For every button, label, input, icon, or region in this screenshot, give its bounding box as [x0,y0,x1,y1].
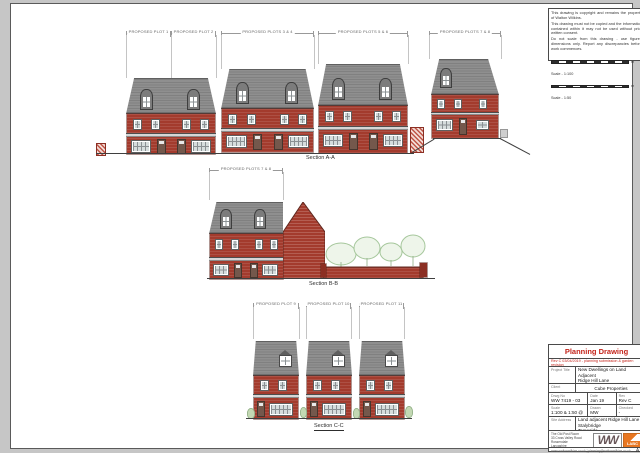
window [384,380,393,391]
scale-bar [551,85,629,89]
window [479,99,487,109]
extension-line [253,307,254,339]
site-address-label-cell: Site Address [549,417,575,430]
dormer-window [254,209,266,229]
window [437,99,445,109]
company-row: The Old Post Room 33 Cross Valley Road R… [549,430,640,447]
plot-label: PROPOSED PLOT 2 [172,29,216,34]
copy-restriction-note: This drawing must not be copied and the … [551,22,640,36]
plot-label: PROPOSED PLOTS 7 & 8 [438,29,492,34]
drawing-sheet: PROPOSED PLOT 1 PROPOSED PLOT 2 PROPOSED… [10,3,633,449]
elevation-plot-11 [359,341,405,419]
plot-label: PROPOSED PLOTS 5 & 6 [336,29,390,34]
ground-line [207,278,435,279]
scale-bar-1-50: m Scale - 1:50 [551,78,640,101]
roof [306,341,352,376]
elevation-plots-3-4 [221,69,314,152]
extension-line [404,307,405,339]
site-address-row: Site Address Land adjacent Ridge Hill La… [549,416,640,430]
elevation-plot-10 [306,341,352,419]
section-b-label: Section B-B [309,281,338,287]
dormer-window [332,78,345,100]
extension-line [501,35,502,59]
dimension-line-plots-7-8: PROPOSED PLOTS 7 & 8 [209,170,283,171]
front-door [369,133,378,150]
window [182,119,191,130]
dormer-window [279,355,292,367]
ground-line [246,418,412,419]
extension-line [306,307,307,339]
window [247,114,256,125]
client-name: Cube Properties [576,384,640,392]
extension-line [221,35,222,69]
window [374,111,383,122]
elevation-plots-5-6 [318,64,408,155]
site-address-value-cell: Land adjacent Ridge Hill Lane Stalybridg… [575,417,640,430]
window [228,114,237,125]
ground-floor-window [375,403,399,416]
window [325,111,334,122]
roof [359,341,405,376]
scale-bar-1-100: m Scale - 1:100 [551,53,640,76]
window [343,111,352,122]
canopy [359,394,405,398]
landscaping-trees [323,224,427,268]
plot-label: PROPOSED PLOT 1 [127,29,171,34]
drawn-cell: Drawn MW [587,405,615,416]
plot-label: PROPOSED PLOTS 7 & 8 [219,166,273,171]
window [331,380,340,391]
ground-floor-window [262,264,278,276]
dimension-line-plots-3-4: PROPOSED PLOTS 3 & 4 [221,33,314,34]
planning-drawing-sheet: { "colors": { "brick": "#a33b2d", "roof"… [0,0,640,452]
footer-row: www.waltonwilkins.co.uk | planning@walto… [549,447,640,453]
window [278,380,287,391]
extension-line [216,35,217,78]
project-title-value-cell: New Dwellings on Land Adjacent Ridge Hil… [575,367,640,383]
scale-bar-unit: m [631,84,634,88]
ground-floor-window [288,135,309,148]
project-title-row: Project Title New Dwellings on Land Adja… [549,366,640,383]
dormer-window [385,355,398,367]
doc-type: Planning Drawing [565,347,628,356]
ground-line [433,138,501,139]
canopy [318,126,408,130]
window [476,120,489,130]
garden-wall [324,267,423,278]
dimension-line-plots-5-6: PROPOSED PLOTS 5 & 6 [318,33,408,34]
ground-floor-window [436,119,453,131]
front-door [234,263,242,278]
date: Jan 19 [588,398,615,404]
checked-cell: Checked - [616,405,640,416]
drwg-no-cell: Drwg No WW 7419 - 03 [549,393,587,404]
client-value-cell: Cube Properties [575,384,640,392]
elevation-plots-7-8-end [431,59,499,139]
canopy [253,394,299,398]
front-door [274,134,283,150]
extension-line [171,35,172,78]
dormer-window [332,355,345,367]
front-door [349,133,358,150]
front-door [363,401,371,417]
front-door [459,118,467,135]
site-address-line: Land adjacent Ridge Hill Lane [576,417,640,423]
canopy [431,112,499,115]
sectioned-wall-gray [500,129,508,138]
extension-line [351,307,352,339]
dormer-window [140,89,153,110]
window [260,380,269,391]
window [280,114,289,125]
dimension-line-plots-7-8: PROPOSED PLOTS 7 & 8 [429,33,501,34]
plot-label: PROPOSED PLOT 9 [254,301,298,306]
dormer-window [440,68,452,88]
dormer-window [220,209,232,229]
site-address-label: Site Address [549,417,575,422]
dimension-line-plot-1: PROPOSED PLOT 1 [126,33,171,34]
ground-floor-window [383,134,403,147]
drwg-no: WW 7419 - 03 [549,398,587,404]
gable-end-wall [283,202,325,279]
garden-wall-pier [420,263,427,277]
extension-line [429,35,430,59]
title-block: Planning Drawing Rev C 03/04/2019 - plan… [548,344,640,452]
canopy [209,257,283,261]
front-door [253,134,262,150]
paper-size: A1 [636,448,640,453]
dormer-window [285,82,298,104]
extension-line [318,35,319,64]
labc-logo: LABC [623,433,640,448]
elevation-plot-9 [253,341,299,419]
client-label-cell: Client [549,384,575,392]
dimension-line-plot-9: PROPOSED PLOT 9 [253,305,299,306]
labc-logo-icon [624,434,640,442]
dimension-line-plot-2: PROPOSED PLOT 2 [171,33,216,34]
ground-floor-window [269,403,293,416]
garden-wall-pier [321,264,326,277]
scale-bar-caption: Scale - 1:100 [551,72,640,76]
section-a-label: Section A-A [306,155,335,161]
client-row: Client Cube Properties [549,383,640,392]
project-title-label: Project Title [549,367,575,372]
elevation-section-b-pair [209,202,283,279]
company-address: The Old Post Room 33 Cross Valley Road R… [549,431,597,447]
canopy [306,394,352,398]
labc-logo-text: LABC [624,441,640,446]
front-door [250,263,258,278]
ground-floor-window [213,264,229,276]
front-door [310,401,318,417]
dormer-window [236,82,249,104]
ground-line [96,153,414,154]
revision-row: Rev C 03/04/2019 - planning submission &… [549,358,640,366]
front-door [257,401,265,417]
doc-type-row: Planning Drawing [549,345,640,358]
drawing-number-row: Drwg No WW 7419 - 03 Date Jan 19 Rev Rev… [549,392,640,404]
rev-cell: Rev Rev C [616,393,640,404]
window [392,111,401,122]
canopy [221,128,314,132]
notes-panel: This drawing is copyright and remains th… [548,8,640,61]
elevation-plots-1-2 [126,78,216,154]
plot-label: PROPOSED PLOTS 3 & 4 [240,29,294,34]
window [298,114,307,125]
shrub [405,406,413,418]
scale-row: Scale 1:100 & 1:50 @ A1 Drawn MW Checked… [549,404,640,416]
window [200,119,209,130]
ww-logo: WW [593,433,622,448]
project-title-label-cell: Project Title [549,367,575,383]
extension-line [299,307,300,339]
window [231,239,239,250]
extension-line [283,172,284,200]
roof [221,69,314,109]
scaling-note: Do not scale from this drawing - use fig… [551,37,640,51]
extension-line [126,35,127,78]
ground-floor-window [191,140,211,153]
plot-label: PROPOSED PLOT 10 [305,301,351,306]
scale-bar [551,60,629,64]
rev: Rev C [617,398,640,404]
plot-label: PROPOSED PLOT 11 [359,301,405,306]
window [313,380,322,391]
client-label: Client [549,384,575,389]
date-cell: Date Jan 19 [587,393,615,404]
window [215,239,223,250]
dormer-window [379,78,392,100]
revision-note: Rev C 03/04/2019 - planning submission &… [549,359,640,367]
project-title-line: New Dwellings on Land Adjacent [576,367,640,378]
canopy [126,133,216,137]
scale-bar-caption: Scale - 1:50 [551,96,640,100]
scale-cell: Scale 1:100 & 1:50 @ A1 [549,405,587,416]
dimension-line-plot-11: PROPOSED PLOT 11 [359,305,404,306]
extension-line [359,307,360,339]
roof [253,341,299,376]
dormer-window [187,89,200,110]
window [454,99,462,109]
front-door [157,139,166,154]
dimension-line-plot-10: PROPOSED PLOT 10 [306,305,351,306]
shrub [300,407,307,418]
front-door [177,139,186,154]
scale-bar-unit: m [631,60,634,64]
copyright-note: This drawing is copyright and remains th… [551,11,640,20]
window [366,380,375,391]
section-c-label: Section C-C [314,423,344,431]
extension-line [209,172,210,200]
extension-line [408,35,409,64]
extension-line [314,35,315,69]
ground-floor-window [322,403,346,416]
window [270,239,278,250]
checked-value: - [617,410,640,416]
window [255,239,263,250]
ground-floor-window [226,135,247,148]
window [151,119,160,130]
ground-floor-window [131,140,151,153]
drawn-value: MW [588,410,615,416]
ground-floor-window [323,134,343,147]
ground-line-slope [500,138,530,155]
window [133,119,142,130]
sectioned-wall-hatch [96,143,106,156]
